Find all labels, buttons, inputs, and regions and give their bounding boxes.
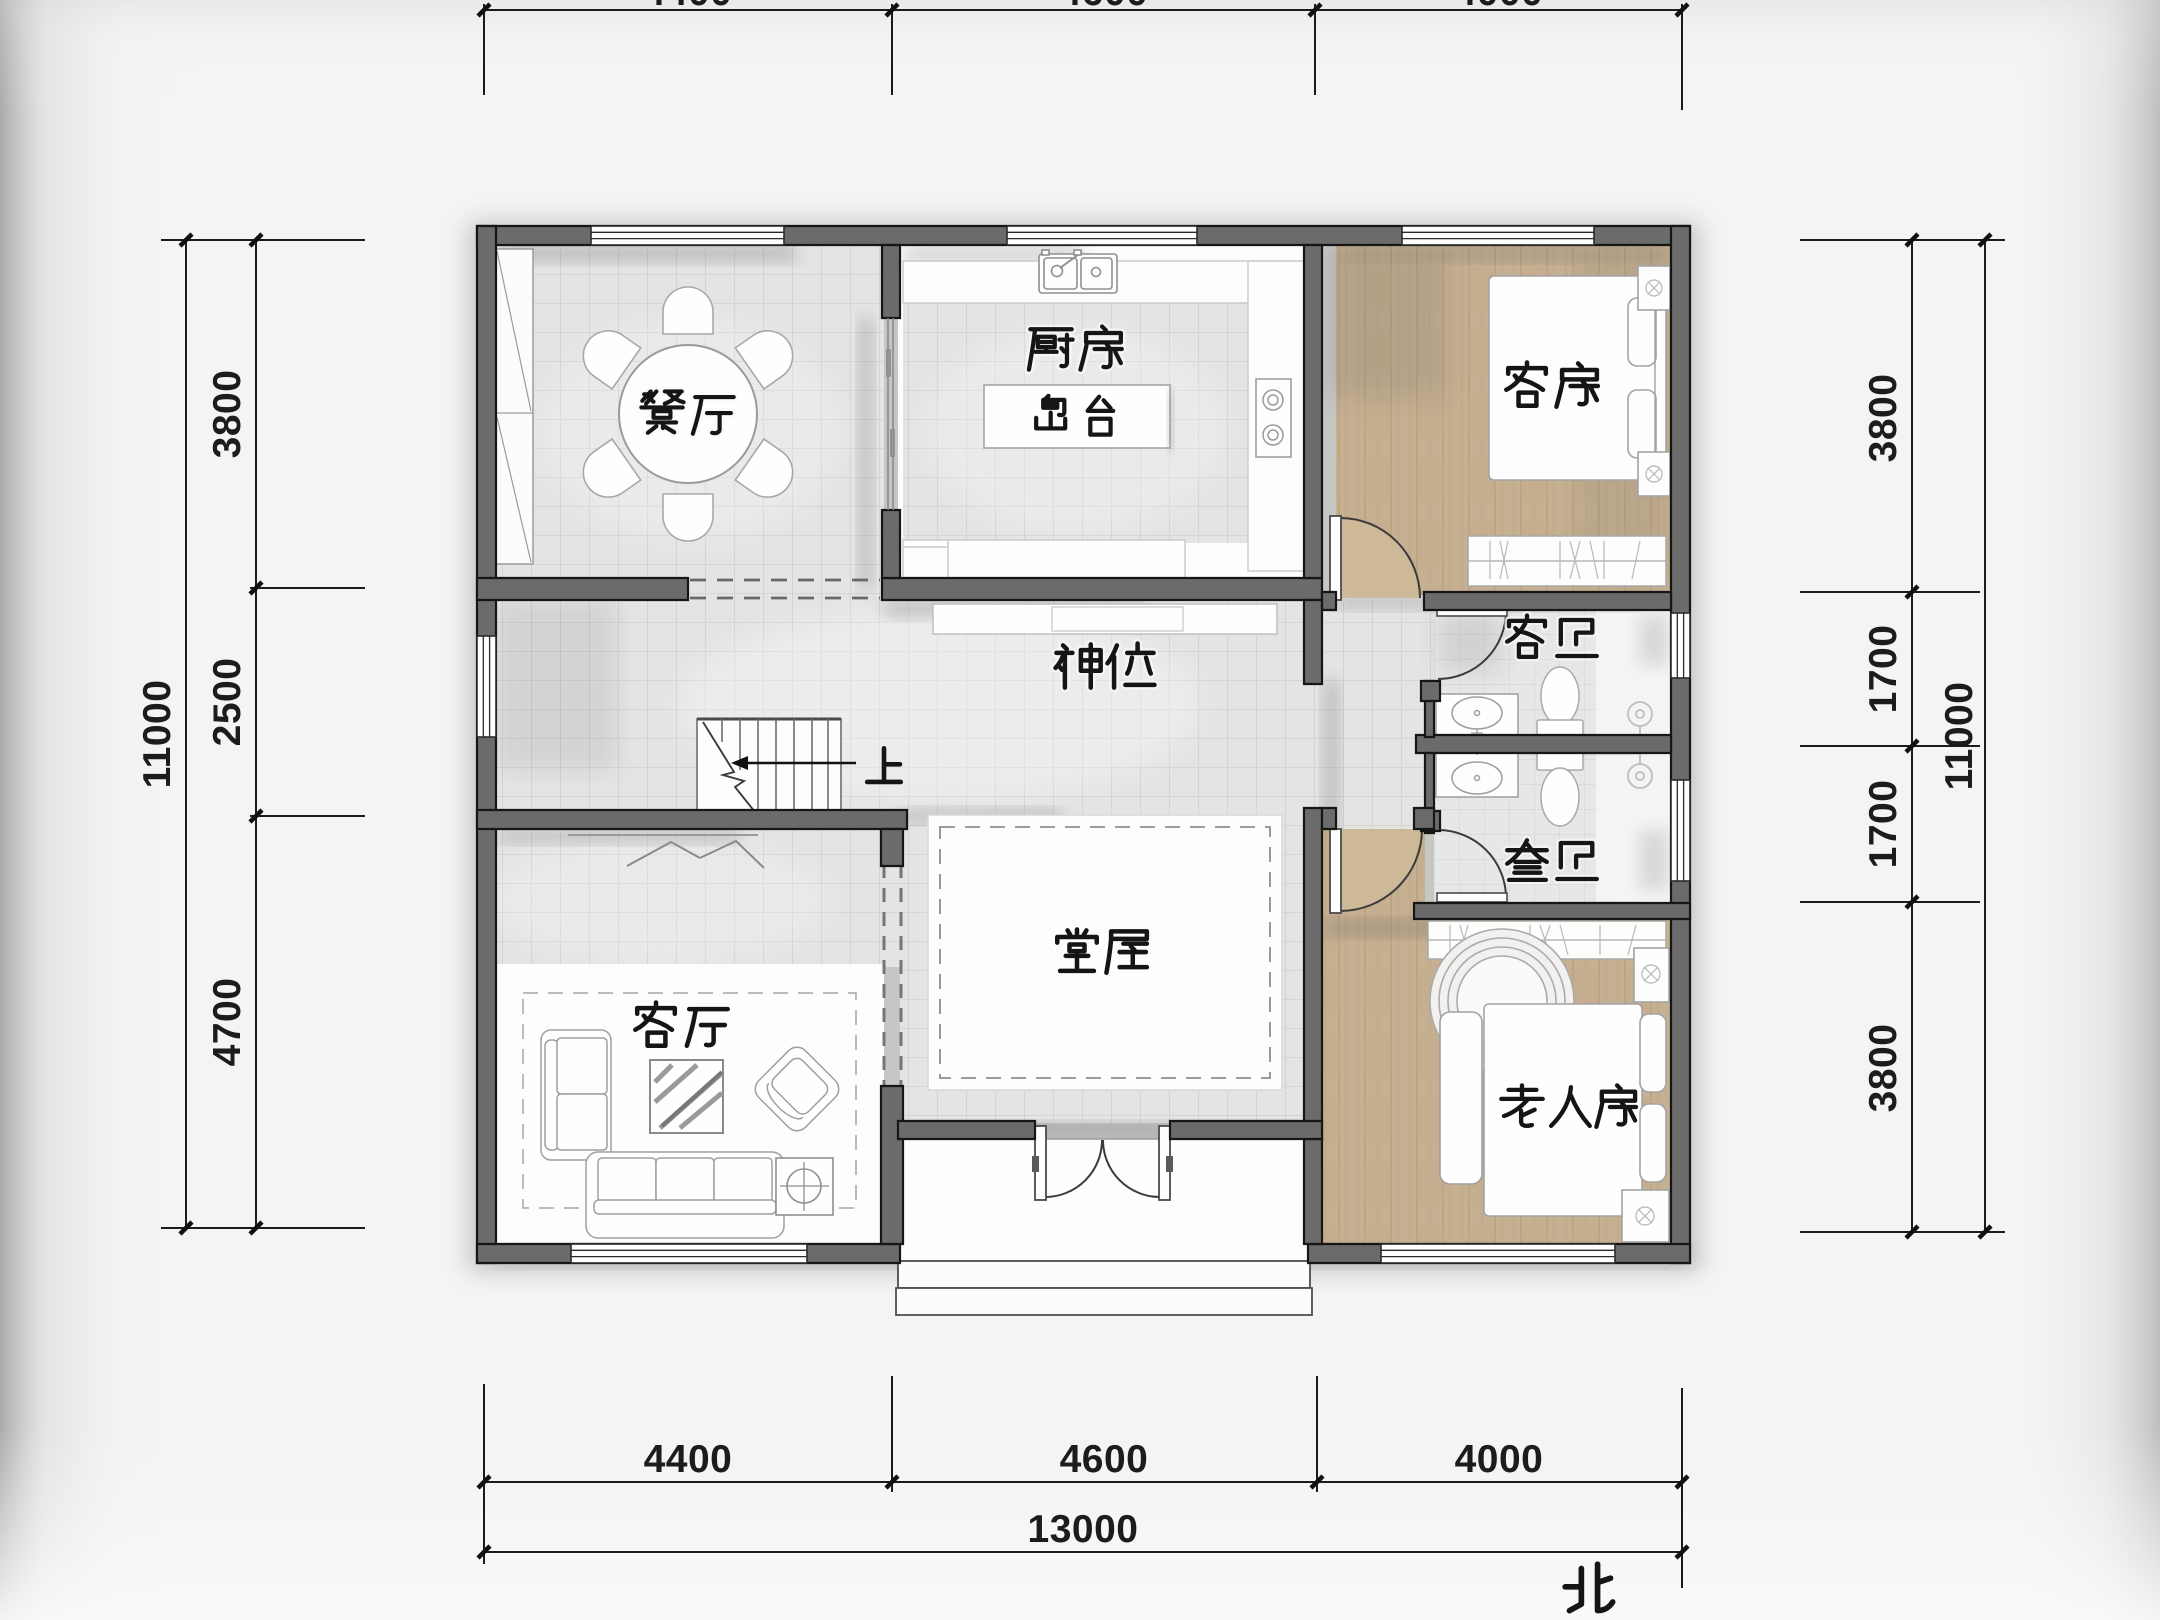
svg-text:4000: 4000 [1455,1438,1544,1481]
svg-text:4600: 4600 [1060,1438,1149,1481]
svg-text:4700: 4700 [206,978,249,1067]
svg-text:11000: 11000 [136,680,179,789]
svg-text:3800: 3800 [1862,374,1905,463]
svg-text:4400: 4400 [644,1438,733,1481]
svg-text:1700: 1700 [1862,625,1905,714]
svg-text:1700: 1700 [1862,780,1905,869]
svg-text:11000: 11000 [1938,682,1981,791]
svg-text:4400: 4400 [644,0,733,14]
svg-text:4000: 4000 [1455,0,1544,14]
svg-text:3800: 3800 [1862,1024,1905,1113]
svg-text:4600: 4600 [1060,0,1149,14]
svg-text:2500: 2500 [206,658,249,747]
svg-text:13000: 13000 [1028,1508,1139,1551]
svg-text:3800: 3800 [206,370,249,459]
